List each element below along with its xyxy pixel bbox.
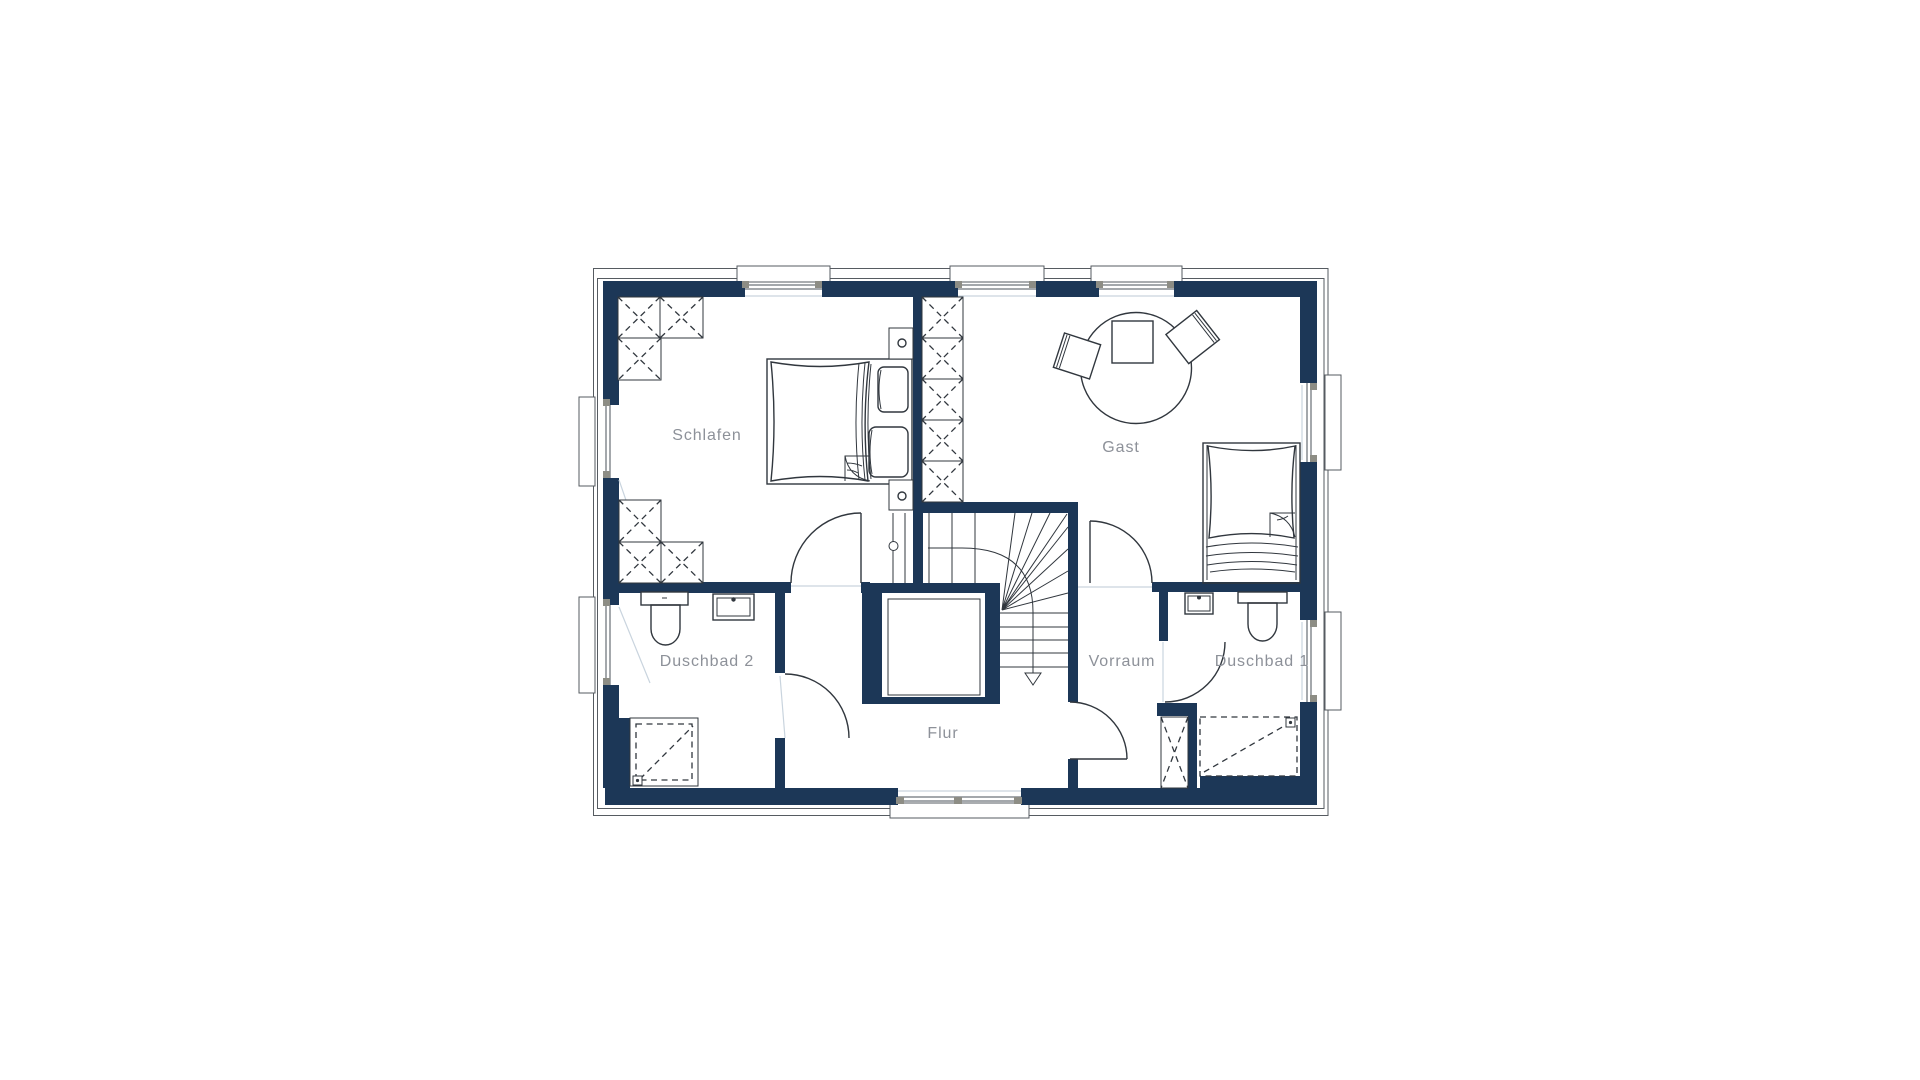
door-frame-schlafen	[889, 513, 905, 583]
nightstand-bottom	[889, 480, 913, 510]
window-right-1	[1302, 383, 1317, 462]
sill-bottom	[890, 803, 1029, 818]
room-label-schlafen: Schlafen	[672, 427, 741, 444]
door-stairs	[1070, 702, 1127, 759]
sill-left-2	[579, 597, 595, 693]
window-bottom	[896, 791, 1022, 804]
sill-top-3	[1091, 266, 1182, 282]
door-duschbad1	[1163, 642, 1225, 702]
wardrobe-column	[922, 297, 963, 502]
wardrobe-schlafen-top	[618, 297, 703, 380]
floor-plan-canvas: Schlafen Gast Duschbad 2 Flur Vorraum Du…	[0, 0, 1920, 1080]
shower-duschbad2	[630, 718, 698, 786]
toilet-icon-duschbad2	[641, 592, 688, 645]
floor-plan-svg: Schlafen Gast Duschbad 2 Flur Vorraum Du…	[0, 0, 1920, 1080]
single-bed	[1203, 443, 1300, 583]
window-top-3	[1096, 281, 1174, 296]
room-label-vorraum: Vorraum	[1089, 653, 1156, 670]
nightstand-top	[889, 328, 913, 359]
chair-right	[1166, 311, 1220, 364]
door-gast	[1078, 521, 1152, 587]
sink-icon-duschbad2	[713, 594, 754, 620]
sill-right-2	[1325, 612, 1341, 710]
room-label-flur: Flur	[927, 725, 958, 742]
stair-direction-arrow	[1025, 673, 1041, 685]
installation-shaft	[1161, 717, 1188, 788]
doors	[780, 513, 1225, 759]
sill-top-2	[950, 266, 1044, 282]
toilet-icon-duschbad1	[1238, 592, 1287, 641]
window-top-2	[955, 281, 1036, 296]
sink-icon-duschbad1	[1185, 593, 1213, 614]
window-left-2	[603, 599, 650, 685]
double-bed	[767, 359, 912, 484]
door-duschbad2	[780, 674, 849, 738]
window-top-1	[742, 281, 822, 296]
room-label-duschbad2: Duschbad 2	[660, 653, 754, 670]
door-schlafen	[791, 513, 861, 586]
sill-left-1	[579, 397, 595, 486]
wardrobe-schlafen-bottom	[619, 500, 703, 583]
room-label-duschbad1: Duschbad 1	[1215, 653, 1309, 670]
room-label-gast: Gast	[1102, 439, 1139, 456]
sill-top-1	[737, 266, 830, 282]
stairwell-opening	[862, 583, 1000, 704]
sill-right-1	[1325, 375, 1341, 470]
chair-left	[1053, 333, 1100, 379]
shower-duschbad1	[1200, 717, 1297, 776]
